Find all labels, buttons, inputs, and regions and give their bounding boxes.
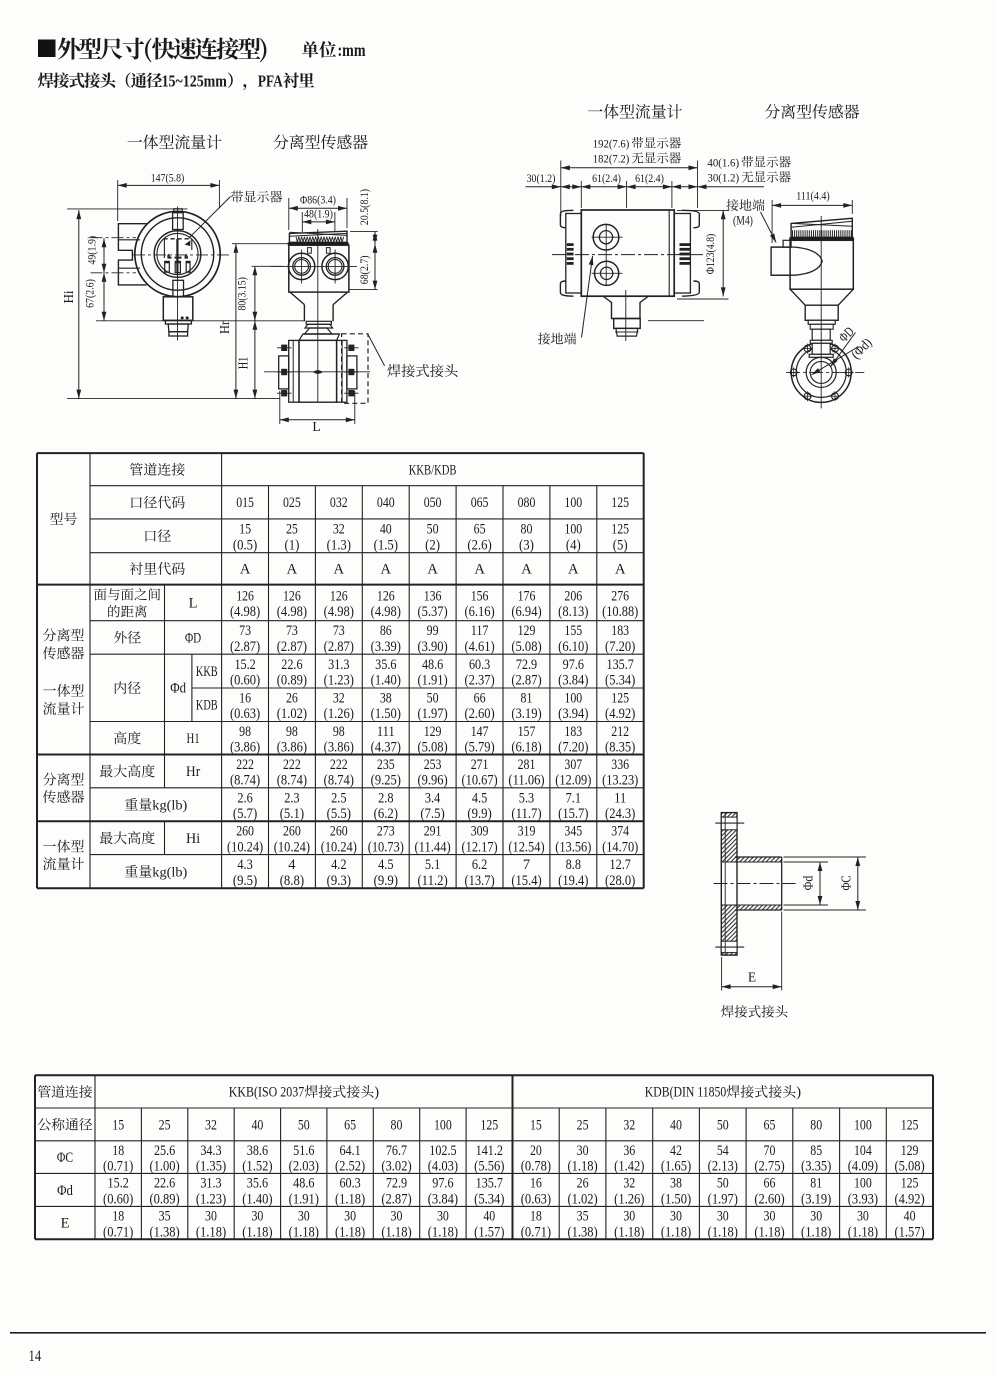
svg-text:40: 40 (483, 1209, 495, 1225)
svg-text:51.6: 51.6 (293, 1143, 314, 1159)
svg-text:(0.89): (0.89) (149, 1191, 179, 1207)
svg-text:(1.18): (1.18) (381, 1224, 411, 1240)
svg-text:3.4: 3.4 (425, 790, 441, 806)
svg-text:222: 222 (283, 757, 301, 773)
svg-text:(3.19): (3.19) (511, 706, 541, 722)
svg-text:(1.97): (1.97) (417, 706, 447, 722)
svg-text:32: 32 (333, 522, 345, 538)
svg-text:125: 125 (611, 522, 629, 538)
svg-text:40(1.6): 40(1.6) (707, 158, 739, 170)
svg-text:65: 65 (474, 522, 486, 538)
svg-text:222: 222 (330, 757, 348, 773)
svg-text:32: 32 (333, 691, 345, 707)
svg-text:(2.6): (2.6) (467, 537, 492, 553)
svg-text:212: 212 (611, 724, 629, 740)
svg-text:(3.90): (3.90) (417, 639, 447, 655)
svg-text:(1.3): (1.3) (327, 537, 352, 553)
svg-text:(1.18): (1.18) (661, 1224, 691, 1240)
svg-text:(0.78): (0.78) (521, 1159, 551, 1175)
svg-text:Hi: Hi (186, 831, 200, 847)
svg-text:129: 129 (424, 724, 442, 740)
svg-text:(2.87): (2.87) (277, 639, 307, 655)
svg-text:(1.00): (1.00) (149, 1159, 179, 1175)
svg-text:307: 307 (564, 757, 582, 773)
svg-text:(5.34): (5.34) (605, 673, 635, 689)
svg-text:(1.97): (1.97) (708, 1191, 738, 1207)
svg-text:4.5: 4.5 (472, 790, 487, 806)
svg-text:(11.2): (11.2) (417, 873, 447, 889)
svg-text:(3.39): (3.39) (371, 639, 401, 655)
svg-text:E: E (748, 970, 756, 985)
svg-text:(1.18): (1.18) (567, 1159, 597, 1175)
svg-text:(1.18): (1.18) (335, 1224, 365, 1240)
svg-text:(11.44): (11.44) (415, 839, 451, 855)
svg-text:(19.4): (19.4) (558, 873, 588, 889)
svg-text:(5.56): (5.56) (474, 1159, 504, 1175)
svg-text:(1.26): (1.26) (614, 1191, 644, 1207)
svg-text:(1.18): (1.18) (242, 1224, 272, 1240)
svg-text:176: 176 (518, 588, 536, 604)
svg-text:(1.18): (1.18) (801, 1224, 831, 1240)
svg-text:(1.18): (1.18) (335, 1191, 365, 1207)
svg-text:(6.10): (6.10) (558, 639, 588, 655)
svg-text:(4): (4) (566, 537, 581, 553)
svg-text:(24.3): (24.3) (605, 806, 635, 822)
svg-text:126: 126 (283, 588, 301, 604)
svg-text:80: 80 (521, 522, 533, 538)
svg-text:67(2.6): 67(2.6) (85, 279, 97, 308)
svg-text:A: A (427, 562, 438, 578)
svg-text:(1.02): (1.02) (277, 706, 307, 722)
svg-text:Hr: Hr (186, 764, 200, 780)
svg-text:70: 70 (764, 1143, 776, 1159)
svg-text:H1: H1 (187, 731, 200, 747)
svg-text:(2.60): (2.60) (754, 1191, 784, 1207)
svg-text:(7.20): (7.20) (605, 639, 635, 655)
svg-text:111: 111 (377, 724, 395, 740)
svg-text:(7.5): (7.5) (420, 806, 445, 822)
svg-text:(0.60): (0.60) (103, 1191, 133, 1207)
svg-text:KDB: KDB (196, 698, 218, 714)
svg-text:(11.06): (11.06) (508, 773, 544, 789)
svg-text:(1.26): (1.26) (324, 706, 354, 722)
svg-text:(3.35): (3.35) (801, 1159, 831, 1175)
svg-text:38: 38 (670, 1176, 682, 1192)
svg-text:(2.87): (2.87) (230, 639, 260, 655)
svg-text:30: 30 (437, 1209, 449, 1225)
svg-text:80: 80 (391, 1117, 403, 1133)
svg-text:32: 32 (623, 1176, 635, 1192)
svg-text:4.5: 4.5 (378, 857, 393, 873)
svg-text:73: 73 (239, 623, 251, 639)
svg-text:97.6: 97.6 (563, 657, 584, 673)
svg-text:(6.18): (6.18) (511, 740, 541, 756)
svg-text:35: 35 (577, 1209, 589, 1225)
svg-text:(3): (3) (519, 537, 534, 553)
svg-text:100: 100 (564, 495, 582, 511)
svg-text:30: 30 (670, 1209, 682, 1225)
svg-text:273: 273 (377, 824, 395, 840)
svg-text:(0.71): (0.71) (521, 1224, 551, 1240)
svg-text:374: 374 (611, 824, 629, 840)
svg-text:(10.24): (10.24) (227, 839, 263, 855)
svg-text:(1.18): (1.18) (708, 1224, 738, 1240)
svg-text:80(3.15): 80(3.15) (237, 277, 249, 311)
svg-text:(3.93): (3.93) (848, 1191, 878, 1207)
svg-text:5.3: 5.3 (519, 790, 534, 806)
svg-text:(6.16): (6.16) (464, 604, 494, 620)
svg-text:(1.18): (1.18) (289, 1224, 319, 1240)
svg-text:(5.34): (5.34) (474, 1191, 504, 1207)
svg-text:(12.09): (12.09) (555, 773, 591, 789)
svg-text:(1.91): (1.91) (289, 1191, 319, 1207)
svg-text:(5.5): (5.5) (327, 806, 352, 822)
svg-text:192(7.6): 192(7.6) (593, 139, 630, 151)
svg-text:5.1: 5.1 (425, 857, 440, 873)
svg-text:22.6: 22.6 (281, 657, 302, 673)
svg-text:117: 117 (471, 623, 489, 639)
svg-text:(2.37): (2.37) (464, 673, 494, 689)
svg-text:35.6: 35.6 (247, 1176, 268, 1192)
svg-text:(13.7): (13.7) (464, 873, 494, 889)
svg-text:(4.03): (4.03) (428, 1159, 458, 1175)
svg-text:(1.40): (1.40) (371, 673, 401, 689)
svg-text:40: 40 (670, 1117, 682, 1133)
svg-text:7: 7 (523, 857, 530, 873)
svg-text:65: 65 (344, 1117, 356, 1133)
svg-text:(9.25): (9.25) (371, 773, 401, 789)
svg-text:025: 025 (283, 495, 301, 511)
svg-text:26: 26 (577, 1176, 589, 1192)
svg-text:(2.60): (2.60) (464, 706, 494, 722)
svg-text:A: A (287, 562, 298, 578)
svg-text:(1.42): (1.42) (614, 1159, 644, 1175)
svg-text:183: 183 (611, 623, 629, 639)
svg-text:50: 50 (298, 1117, 310, 1133)
svg-text:126: 126 (330, 588, 348, 604)
svg-text:80: 80 (810, 1117, 822, 1133)
svg-text:14: 14 (29, 1348, 42, 1365)
svg-text:(4.61): (4.61) (464, 639, 494, 655)
svg-text:(9.3): (9.3) (327, 873, 352, 889)
svg-text:11: 11 (614, 790, 626, 806)
svg-text:A: A (615, 562, 626, 578)
svg-text:125: 125 (611, 691, 629, 707)
svg-text:(28.0): (28.0) (605, 873, 635, 889)
svg-text:15.2: 15.2 (234, 657, 255, 673)
svg-text:(5.08): (5.08) (894, 1159, 924, 1175)
svg-text:(8.8): (8.8) (280, 873, 305, 889)
svg-text:(12.17): (12.17) (462, 839, 498, 855)
svg-text:(4.37): (4.37) (371, 740, 401, 756)
svg-text:(6.94): (6.94) (511, 604, 541, 620)
svg-text:(2.52): (2.52) (335, 1159, 365, 1175)
svg-text:(8.74): (8.74) (324, 773, 354, 789)
svg-text:30: 30 (810, 1209, 822, 1225)
svg-text:30: 30 (298, 1209, 310, 1225)
svg-text:KKB(ISO 2037: KKB(ISO 2037 (229, 1085, 305, 1101)
svg-text:98: 98 (286, 724, 298, 740)
svg-text:4: 4 (288, 857, 296, 873)
svg-text:30: 30 (205, 1209, 217, 1225)
svg-text:50: 50 (717, 1117, 729, 1133)
svg-text:(0.5): (0.5) (233, 537, 258, 553)
svg-text:73: 73 (333, 623, 345, 639)
svg-text:Φd: Φd (57, 1183, 73, 1199)
svg-text:2.5: 2.5 (331, 790, 346, 806)
svg-text:97.6: 97.6 (432, 1176, 453, 1192)
svg-text:(M4): (M4) (733, 213, 753, 228)
svg-text:(3.86): (3.86) (277, 740, 307, 756)
svg-text:15: 15 (239, 522, 251, 538)
svg-text:): ) (374, 1085, 379, 1101)
svg-text:(2.87): (2.87) (511, 673, 541, 689)
svg-text:A: A (521, 562, 532, 578)
svg-text:(6.2): (6.2) (374, 806, 399, 822)
svg-text:(1.18): (1.18) (614, 1224, 644, 1240)
svg-text:81: 81 (521, 691, 533, 707)
svg-text:(2.87): (2.87) (381, 1191, 411, 1207)
svg-text:Φ86(3.4): Φ86(3.4) (300, 195, 336, 207)
svg-text:kg(lb): kg(lb) (152, 798, 187, 813)
svg-text:PFA: PFA (258, 72, 283, 91)
svg-text:18: 18 (112, 1209, 124, 1225)
svg-text:A: A (334, 562, 345, 578)
svg-text:281: 281 (518, 757, 536, 773)
svg-text:A: A (240, 562, 251, 578)
svg-text:72.9: 72.9 (386, 1176, 407, 1192)
svg-text:Φ123(4.8): Φ123(4.8) (705, 234, 717, 275)
svg-text:(1.23): (1.23) (324, 673, 354, 689)
svg-text:(5.1): (5.1) (280, 806, 305, 822)
svg-text:(10.24): (10.24) (321, 839, 357, 855)
svg-text:30: 30 (251, 1209, 263, 1225)
svg-text:22.6: 22.6 (154, 1176, 175, 1192)
svg-text:31.3: 31.3 (328, 657, 349, 673)
svg-text:157: 157 (518, 724, 536, 740)
svg-text:ΦC: ΦC (839, 875, 854, 890)
svg-text:30: 30 (857, 1209, 869, 1225)
svg-text:(1.52): (1.52) (242, 1159, 272, 1175)
svg-text:080: 080 (518, 495, 536, 511)
svg-text:291: 291 (424, 824, 442, 840)
svg-text:(2.75): (2.75) (754, 1159, 784, 1175)
svg-text:309: 309 (471, 824, 489, 840)
svg-text:125: 125 (611, 495, 629, 511)
svg-text:36: 36 (623, 1143, 635, 1159)
svg-text:100: 100 (564, 691, 582, 707)
svg-text:E: E (61, 1216, 70, 1232)
svg-text:12.7: 12.7 (610, 857, 631, 873)
svg-text:35.6: 35.6 (375, 657, 396, 673)
svg-text:98: 98 (239, 724, 251, 740)
svg-text:125: 125 (480, 1117, 498, 1133)
svg-text:85: 85 (810, 1143, 822, 1159)
svg-text:2.6: 2.6 (237, 790, 252, 806)
svg-text:54: 54 (717, 1143, 730, 1159)
svg-text:40: 40 (251, 1117, 263, 1133)
svg-text:73: 73 (286, 623, 298, 639)
svg-text:104: 104 (854, 1143, 872, 1159)
svg-text:30: 30 (391, 1209, 403, 1225)
svg-text:(4.98): (4.98) (277, 604, 307, 620)
svg-text:30: 30 (623, 1209, 635, 1225)
svg-text:50: 50 (427, 522, 439, 538)
svg-text:15~125mm: 15~125mm (162, 72, 228, 91)
svg-text:(1): (1) (284, 537, 299, 553)
svg-text:125: 125 (901, 1117, 919, 1133)
svg-text:KKB: KKB (196, 664, 218, 680)
svg-text:(1.65): (1.65) (661, 1159, 691, 1175)
svg-text:271: 271 (471, 757, 489, 773)
svg-text:147: 147 (471, 724, 489, 740)
svg-text:30: 30 (717, 1209, 729, 1225)
svg-text:16: 16 (239, 691, 251, 707)
svg-text:(0.63): (0.63) (521, 1191, 551, 1207)
svg-text:(12.54): (12.54) (508, 839, 544, 855)
svg-text:(13.23): (13.23) (602, 773, 638, 789)
svg-text:(0.71): (0.71) (103, 1159, 133, 1175)
svg-text:16: 16 (530, 1176, 542, 1192)
svg-text:260: 260 (330, 824, 348, 840)
svg-text:050: 050 (424, 495, 442, 511)
svg-text:15: 15 (112, 1117, 124, 1133)
svg-text:(14.70): (14.70) (602, 839, 638, 855)
svg-text:100: 100 (564, 522, 582, 538)
svg-text:141.2: 141.2 (476, 1143, 503, 1159)
svg-text:(8.13): (8.13) (558, 604, 588, 620)
svg-text:135.7: 135.7 (607, 657, 634, 673)
svg-text:48(1.9): 48(1.9) (304, 208, 333, 220)
svg-text:129: 129 (518, 623, 536, 639)
svg-text:L: L (189, 596, 198, 612)
svg-text:(5.08): (5.08) (417, 740, 447, 756)
svg-text:065: 065 (471, 495, 489, 511)
svg-text:A: A (381, 562, 392, 578)
svg-text:(11.7): (11.7) (511, 806, 541, 822)
svg-text:18: 18 (112, 1143, 124, 1159)
svg-text:222: 222 (236, 757, 254, 773)
svg-text:A: A (568, 562, 579, 578)
svg-text:26: 26 (286, 691, 298, 707)
svg-text:(10.67): (10.67) (462, 773, 498, 789)
svg-text:147(5.8): 147(5.8) (151, 173, 185, 185)
svg-text:206: 206 (564, 588, 582, 604)
svg-text:032: 032 (330, 495, 348, 511)
svg-text:156: 156 (471, 588, 489, 604)
svg-text:(1.18): (1.18) (754, 1224, 784, 1240)
svg-text:(2): (2) (425, 537, 440, 553)
svg-text:(15.7): (15.7) (558, 806, 588, 822)
svg-text:15.2: 15.2 (108, 1176, 129, 1192)
svg-text:Φd: Φd (170, 681, 186, 697)
svg-text:Φd: Φd (801, 875, 816, 890)
svg-text:kg(lb): kg(lb) (152, 865, 187, 880)
svg-text:50: 50 (717, 1176, 729, 1192)
svg-text:(1.50): (1.50) (371, 706, 401, 722)
svg-text:(5.79): (5.79) (464, 740, 494, 756)
svg-text:(8.35): (8.35) (605, 740, 635, 756)
svg-text:25: 25 (286, 522, 298, 538)
svg-text:136: 136 (424, 588, 442, 604)
svg-text:(1.5): (1.5) (374, 537, 399, 553)
svg-text:38: 38 (380, 691, 392, 707)
svg-text:(1.02): (1.02) (567, 1191, 597, 1207)
svg-text:(0.89): (0.89) (277, 673, 307, 689)
svg-text:KKB/KDB: KKB/KDB (409, 462, 457, 478)
svg-text:25.6: 25.6 (154, 1143, 175, 1159)
svg-text:60.3: 60.3 (339, 1176, 360, 1192)
svg-text:60.3: 60.3 (469, 657, 490, 673)
svg-text:34.3: 34.3 (200, 1143, 221, 1159)
svg-text:126: 126 (236, 588, 254, 604)
svg-text:126: 126 (377, 588, 395, 604)
svg-text:345: 345 (564, 824, 582, 840)
svg-text:30: 30 (577, 1143, 589, 1159)
svg-text:(10.24): (10.24) (274, 839, 310, 855)
svg-text:(3.86): (3.86) (230, 740, 260, 756)
svg-text:49(1.9): 49(1.9) (87, 236, 99, 265)
svg-text:111(4.4): 111(4.4) (796, 191, 830, 203)
svg-text:31.3: 31.3 (200, 1176, 221, 1192)
svg-text::mm: :mm (338, 40, 366, 60)
svg-text:Hi: Hi (61, 290, 76, 303)
svg-text:25: 25 (577, 1117, 589, 1133)
svg-text:(5.08): (5.08) (511, 639, 541, 655)
svg-text:98: 98 (333, 724, 345, 740)
svg-text:(1.91): (1.91) (417, 673, 447, 689)
svg-text:100: 100 (854, 1117, 872, 1133)
svg-text:100: 100 (434, 1117, 452, 1133)
svg-text:(13.56): (13.56) (555, 839, 591, 855)
svg-text:(2.87): (2.87) (324, 639, 354, 655)
svg-text:86: 86 (380, 623, 392, 639)
svg-text:48.6: 48.6 (422, 657, 443, 673)
svg-text:65: 65 (764, 1117, 776, 1133)
svg-text:(1.38): (1.38) (149, 1224, 179, 1240)
svg-text:35: 35 (159, 1209, 171, 1225)
svg-text:18: 18 (530, 1209, 542, 1225)
svg-text:(5.7): (5.7) (233, 806, 258, 822)
svg-text:ΦD: ΦD (185, 630, 201, 646)
svg-text:(15.4): (15.4) (511, 873, 541, 889)
svg-text:(3.94): (3.94) (558, 706, 588, 722)
svg-text:30: 30 (764, 1209, 776, 1225)
svg-text:(4.98): (4.98) (371, 604, 401, 620)
svg-text:(1.35): (1.35) (196, 1159, 226, 1175)
svg-text:2.3: 2.3 (284, 790, 299, 806)
svg-text:(2.13): (2.13) (708, 1159, 738, 1175)
svg-text:(0.71): (0.71) (103, 1224, 133, 1240)
svg-text:276: 276 (611, 588, 629, 604)
svg-text:32: 32 (205, 1117, 217, 1133)
svg-text:81: 81 (810, 1176, 822, 1192)
svg-text:100: 100 (854, 1176, 872, 1192)
svg-text:(4.98): (4.98) (230, 604, 260, 620)
svg-text:(0.60): (0.60) (230, 673, 260, 689)
svg-text:(2.03): (2.03) (289, 1159, 319, 1175)
svg-text:102.5: 102.5 (429, 1143, 456, 1159)
svg-text:A: A (474, 562, 485, 578)
svg-text:(9.5): (9.5) (233, 873, 258, 889)
svg-text:(8.74): (8.74) (277, 773, 307, 789)
svg-text:40: 40 (904, 1209, 916, 1225)
svg-text:(4.92): (4.92) (894, 1191, 924, 1207)
svg-text:6.2: 6.2 (472, 857, 487, 873)
svg-text:64.1: 64.1 (339, 1143, 360, 1159)
svg-text:129: 129 (901, 1143, 919, 1159)
svg-text:7.1: 7.1 (566, 790, 581, 806)
